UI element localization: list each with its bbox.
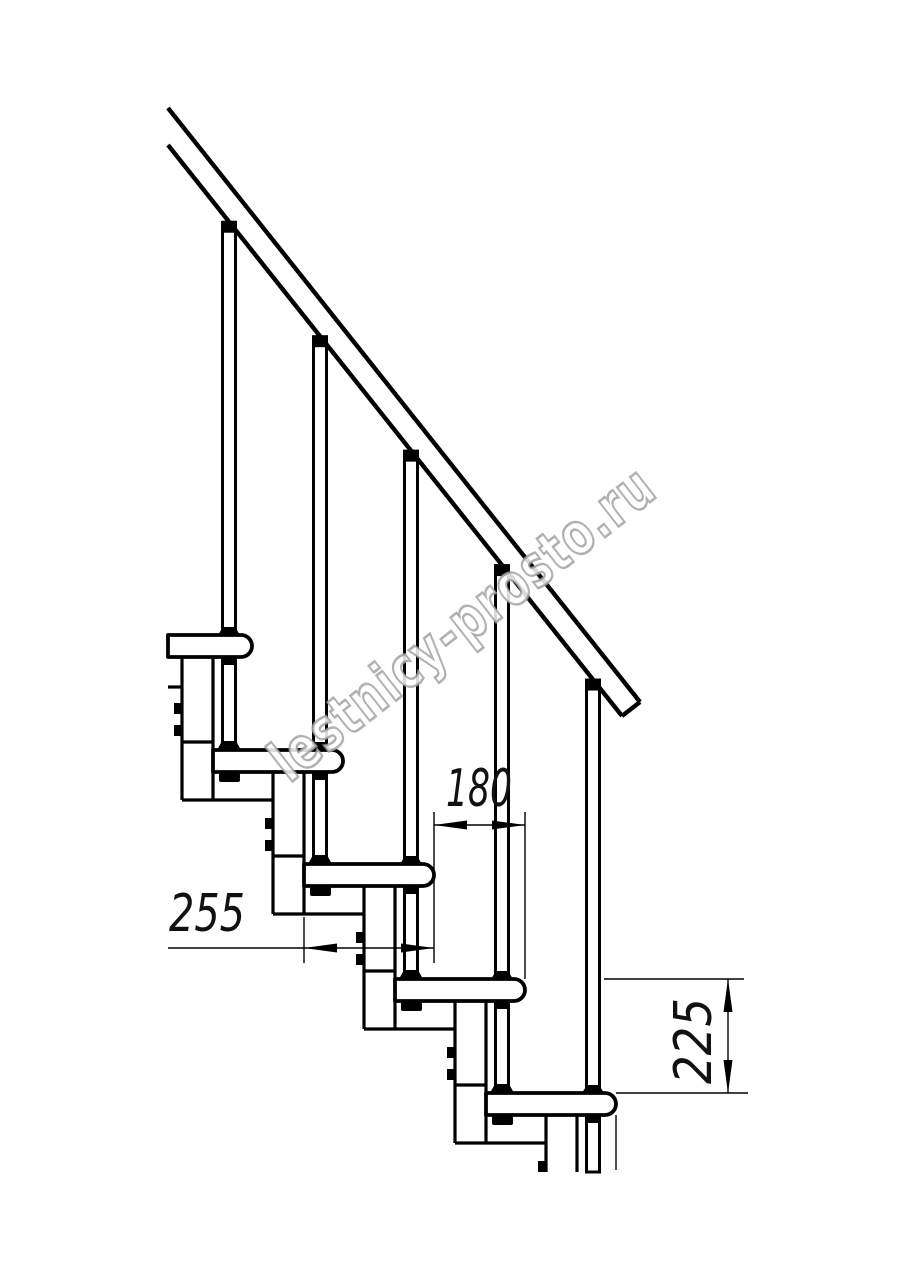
dim-going-label: 180: [446, 759, 512, 819]
dim-rise-label: 225: [664, 998, 724, 1084]
stair-technical-drawing: 180 255 225 lestnicy-prosto.ru: [0, 0, 914, 1280]
drawing-canvas: 180 255 225 lestnicy-prosto.ru: [0, 0, 914, 1280]
dim-depth-label: 255: [169, 884, 245, 944]
